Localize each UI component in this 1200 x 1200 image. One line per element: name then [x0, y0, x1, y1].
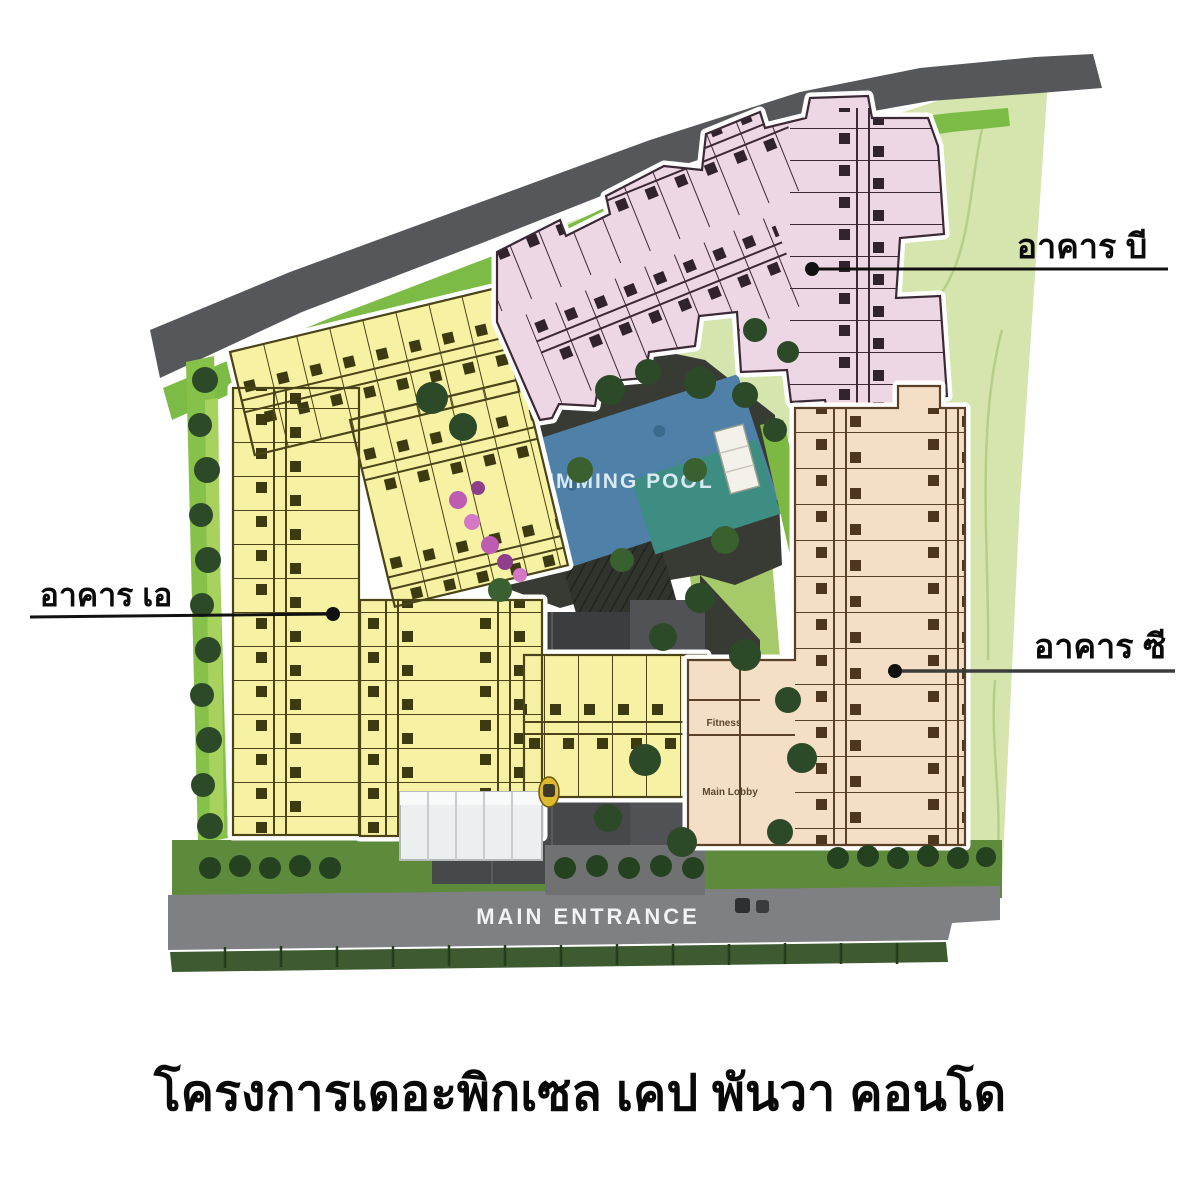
building-b-label: อาคาร บี	[1017, 228, 1148, 266]
building-a-label: อาคาร เอ	[40, 577, 173, 613]
main-lobby-label: Main Lobby	[702, 787, 758, 798]
site-plan-canvas: MAIN ENTRANCE	[0, 0, 1200, 1200]
building-c-label: อาคาร ซี	[1034, 628, 1166, 666]
car-icon	[735, 898, 750, 913]
fitness-room-label: Fitness	[706, 718, 741, 729]
car-icon	[756, 900, 769, 913]
yellow-car-icon	[539, 777, 559, 807]
page-title: โครงการเดอะพิกเซล เคป พันวา คอนโด	[153, 1063, 1006, 1121]
parking-canopy	[400, 792, 542, 860]
site-plan-page: MAIN ENTRANCE	[0, 0, 1200, 1200]
main-entrance-road: MAIN ENTRANCE	[168, 886, 1000, 950]
main-entrance-label: MAIN ENTRANCE	[476, 904, 700, 929]
